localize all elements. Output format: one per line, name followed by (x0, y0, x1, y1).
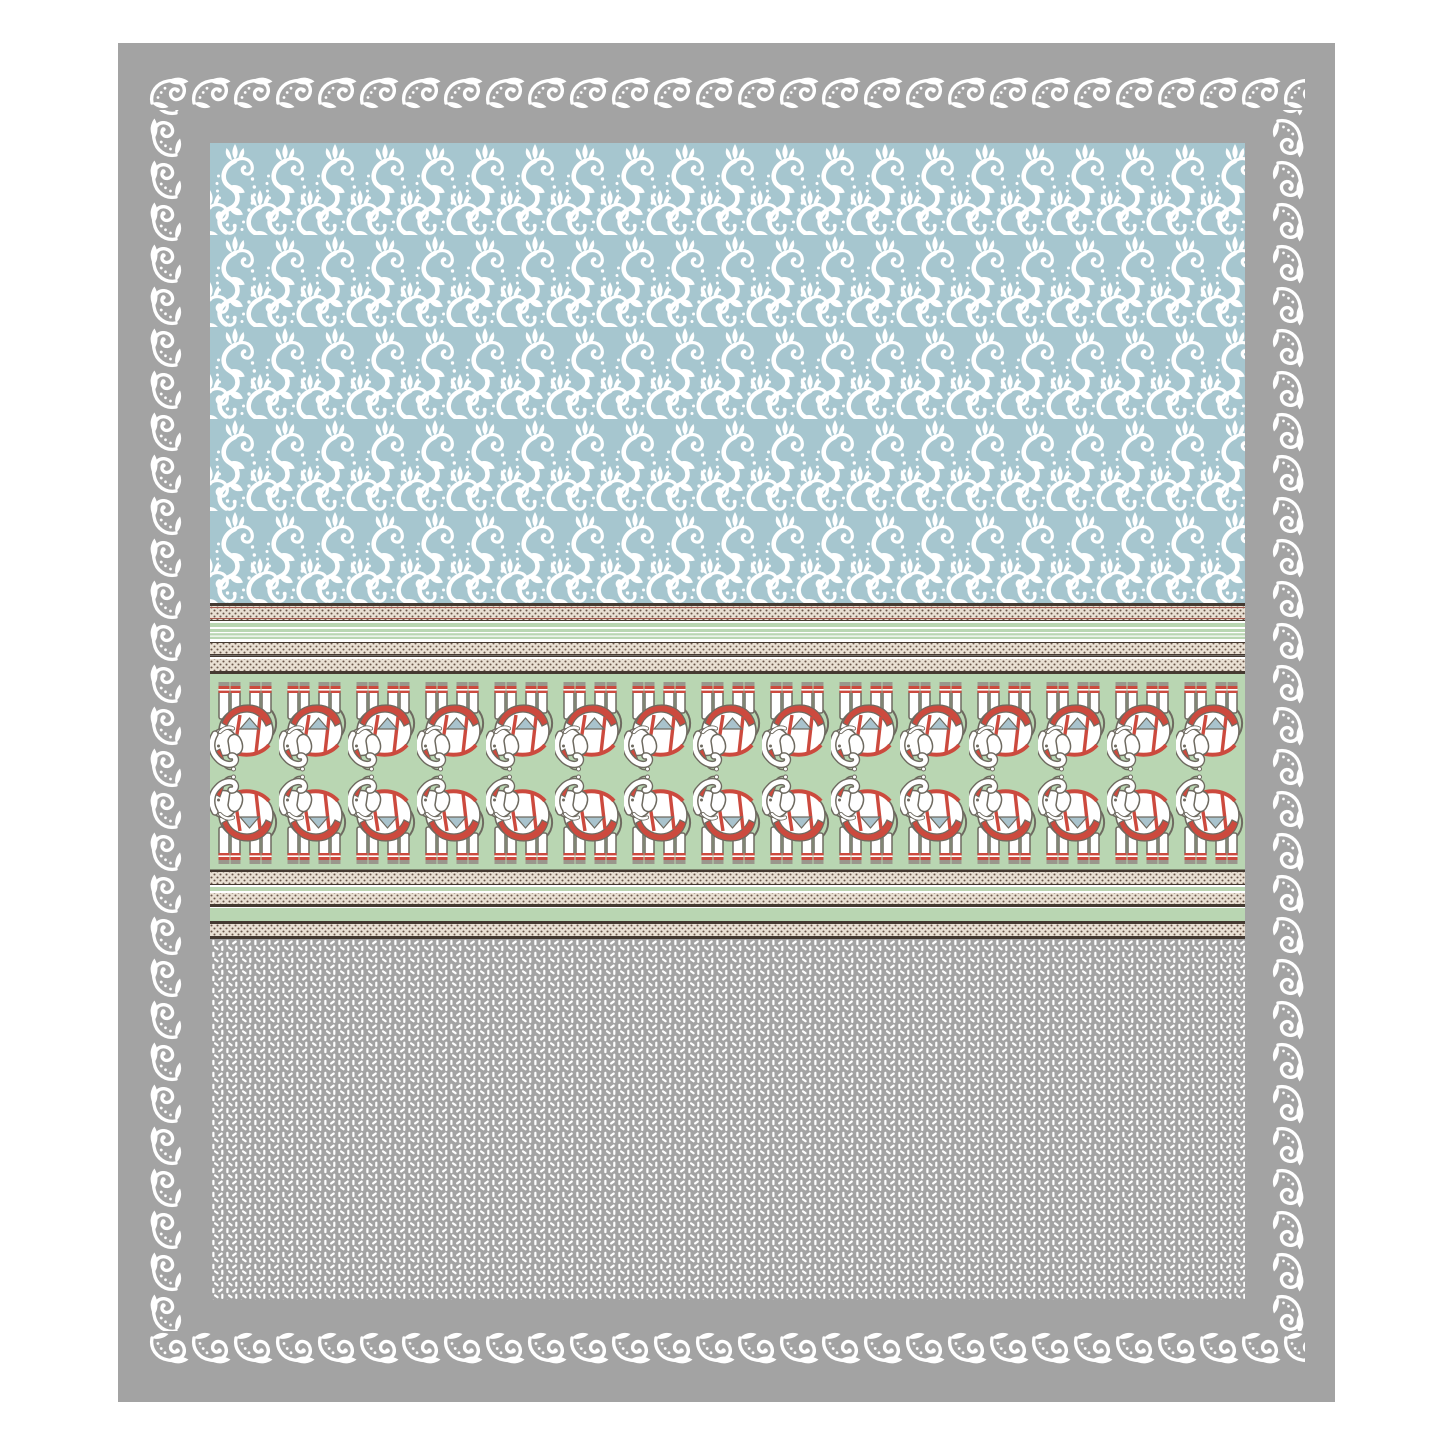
divider-line (210, 905, 1245, 907)
white-stripe (210, 891, 1245, 893)
green-stripe (210, 623, 1245, 627)
white-stripe (210, 907, 1245, 908)
tape-edge (210, 642, 1245, 643)
divider-line (210, 870, 1245, 872)
dotted-tape-dots (210, 659, 1245, 672)
dotted-tape-dots (210, 871, 1245, 885)
bedsheet-photo (0, 0, 1445, 1445)
tape-edge (210, 884, 1245, 885)
bedsheet-artwork (0, 0, 1445, 1445)
tape-edge (210, 936, 1245, 937)
divider-line (210, 603, 1245, 605)
elephant-frieze (210, 676, 1245, 870)
tape-edge (210, 871, 1245, 872)
texture-field-pattern (210, 939, 1245, 1300)
green-band (210, 629, 1245, 639)
tape-edge (210, 620, 1245, 621)
white-stripe (210, 657, 1245, 659)
tape-edge (210, 904, 1245, 905)
ornament-border-bottom (148, 1331, 1305, 1366)
green-band (210, 908, 1245, 921)
ornament-border-left (148, 110, 183, 1331)
green-pinstripe (210, 632, 1245, 633)
green-pinstripe (210, 636, 1245, 637)
tape-pinline-red (210, 607, 1245, 608)
tape-edge (210, 654, 1245, 655)
ornament-border-top (148, 75, 1305, 110)
border-stripes-top (210, 603, 1245, 674)
white-stripe (210, 621, 1245, 623)
tape-edge (210, 605, 1245, 606)
tape-edge (210, 671, 1245, 672)
ornament-border-right (1271, 110, 1306, 1331)
dotted-tape-dots (210, 923, 1245, 937)
white-stripe (210, 627, 1245, 629)
dotted-tape-dots (210, 642, 1245, 655)
tape-edge (210, 923, 1245, 924)
white-stripe (210, 639, 1245, 642)
border-stripes-bottom (210, 870, 1245, 940)
divider-line (210, 921, 1245, 923)
green-stripe (210, 887, 1245, 891)
divider-line (210, 656, 1245, 658)
white-stripe (210, 885, 1245, 887)
tape-pinline-red (210, 618, 1245, 619)
damask-pattern-overlay (210, 143, 1245, 603)
dotted-tape-dots (210, 893, 1245, 905)
divider-line (210, 672, 1245, 674)
divider-line (210, 937, 1245, 939)
printed-panel (210, 143, 1245, 1300)
